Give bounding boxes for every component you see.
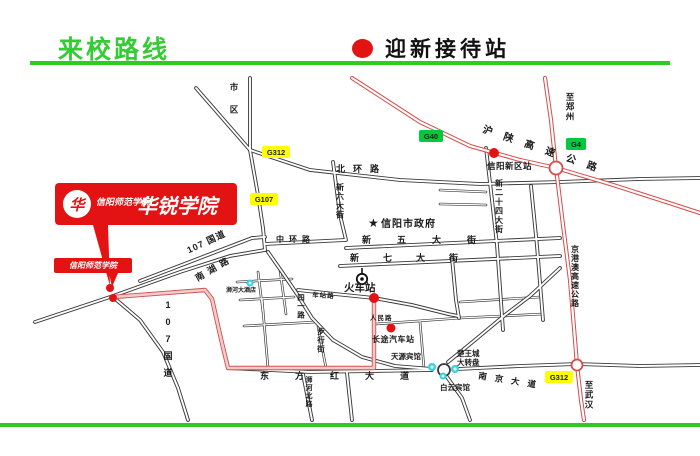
college-name-large: 华锐学院 xyxy=(137,190,217,219)
label-new-district-station: 信阳新区站 xyxy=(487,161,532,171)
legend-label: 迎新接待站 xyxy=(385,33,510,63)
new-district-dot-icon xyxy=(489,148,499,158)
label-baiyun-hotel: 白云宾馆 xyxy=(440,382,470,392)
divider-bottom xyxy=(0,423,700,427)
banner-pointer-icon xyxy=(93,225,110,286)
sign-g312-nw: G312 xyxy=(262,146,290,158)
college-logo-icon: 华 xyxy=(63,190,91,218)
sign-g4: G4 xyxy=(566,138,586,150)
label-beihuan-road: 北环路 xyxy=(336,163,387,174)
label-renmin-road: 人民路 xyxy=(370,313,393,322)
expressway-interchange-icon xyxy=(550,162,563,175)
sign-g40: G40 xyxy=(419,130,443,142)
label-xin24-avenue: 新二十四大街 xyxy=(494,178,503,234)
label-to-wuhan: 至武汉 xyxy=(585,380,594,409)
college-road-dot-icon xyxy=(109,294,117,302)
label-xinqi-avenue: 新七大街 xyxy=(350,252,482,263)
label-nanjing-avenue: 南京大道 xyxy=(478,370,545,390)
route-to-college xyxy=(113,290,374,368)
bus-station-dot-icon xyxy=(387,324,396,333)
college-dot-icon xyxy=(106,284,114,292)
college-banner: 华 信阳师范学院 华锐学院 xyxy=(55,183,237,225)
svg-text:G107: G107 xyxy=(255,195,273,204)
label-to-city: 市区 xyxy=(230,82,239,115)
label-xinwu-avenue: 新五大街 xyxy=(362,234,502,245)
sign-g312-se: G312 xyxy=(545,371,573,383)
college-callout: 信阳师范学院 xyxy=(54,258,132,273)
label-government: 信阳市政府 xyxy=(381,217,436,230)
label-pedestrian-street: 步行街 xyxy=(316,326,325,353)
label-bus-station: 长途汽车站 xyxy=(372,334,415,344)
government-star-icon: ★ xyxy=(368,216,379,230)
g312-interchange-icon xyxy=(572,360,583,371)
svg-text:G312: G312 xyxy=(550,373,568,382)
map-canvas: 北环路 中环路 新五大街 新七大街 新六大街 新二十四大街 南湖路 107 国道… xyxy=(0,0,700,456)
svg-text:G4: G4 xyxy=(571,140,582,149)
label-xinliu-avenue: 新六大街 xyxy=(335,182,344,220)
label-to-zhengzhou: 至郑州 xyxy=(565,92,575,121)
divider-top xyxy=(30,61,670,65)
label-tianyuan-hotel: 天源宾馆 xyxy=(391,351,421,361)
callout-pointers xyxy=(93,225,118,287)
label-dongfanghong-avenue: 东方红大道 xyxy=(260,370,435,381)
label-chuwangcheng-1: 楚王城 xyxy=(457,348,480,358)
label-train-station: 火车站 xyxy=(344,281,376,294)
legend: 迎新接待站 xyxy=(352,33,510,63)
svg-text:G40: G40 xyxy=(424,132,438,141)
svg-text:G312: G312 xyxy=(267,148,285,157)
label-chuwangcheng-2: 大转盘 xyxy=(457,357,480,367)
label-shihe-hotel: 浉河大酒店 xyxy=(226,286,256,294)
label-siyi-road: 四一路 xyxy=(297,293,305,319)
train-station-dot-icon xyxy=(369,293,379,303)
reception-station-dot-icon xyxy=(352,39,373,58)
label-jinggangao-expressway: 京港澳高速公路 xyxy=(571,244,580,308)
label-shihe-north-road: 浉河北路 xyxy=(306,375,314,408)
campus-route-map-page: 来校路线 迎新接待站 xyxy=(0,0,700,456)
sign-g107: G107 xyxy=(250,193,278,205)
label-zhonghuan-road: 中环路 xyxy=(276,234,315,244)
